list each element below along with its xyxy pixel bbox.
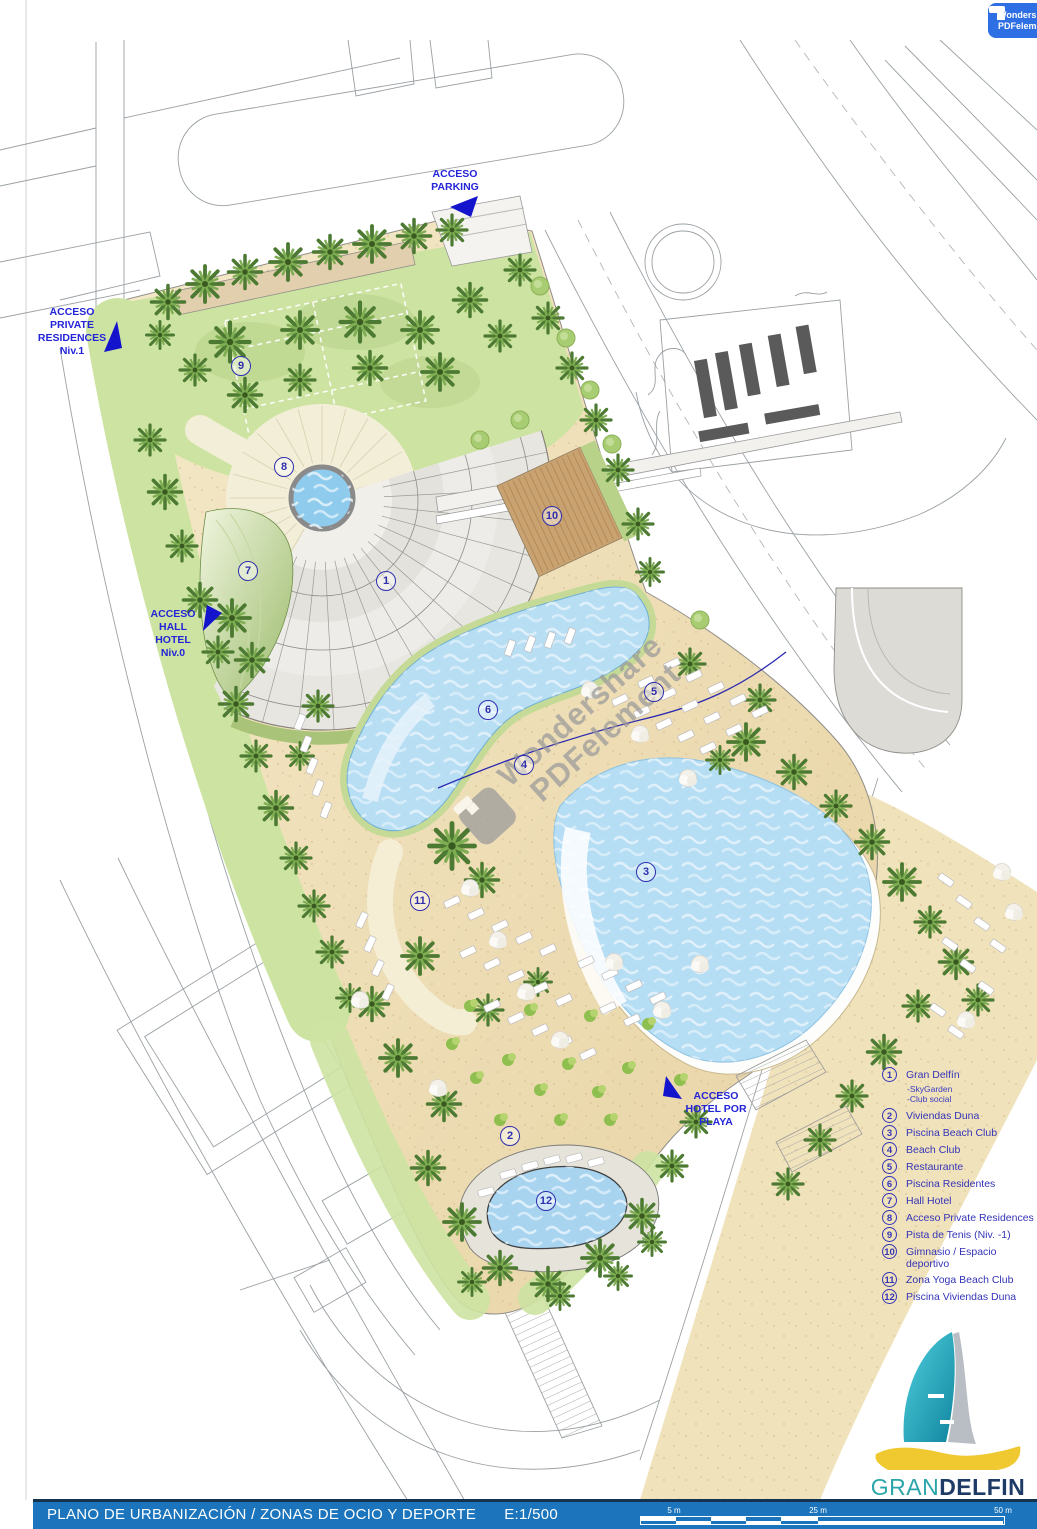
legend-number: 7 xyxy=(882,1193,897,1208)
plan-marker-2: 2 xyxy=(500,1126,520,1146)
legend-label: Gimnasio / Espacio deportivo xyxy=(906,1244,1037,1270)
legend-number: 2 xyxy=(882,1108,897,1123)
plan-marker-7: 7 xyxy=(238,561,258,581)
access-label-hotel-playa: ACCESOHOTEL PORPLAYA xyxy=(685,1090,746,1129)
legend-label: Viviendas Duna xyxy=(906,1108,979,1122)
legend-item-8: 8Acceso Private Residences xyxy=(882,1210,1037,1225)
plan-marker-8: 8 xyxy=(274,457,294,477)
legend-item-4: 4Beach Club xyxy=(882,1142,1037,1157)
access-label-hall-hotel: ACCESOHALLHOTELNiv.0 xyxy=(151,608,196,660)
access-label-parking: ACCESOPARKING xyxy=(431,168,479,194)
scale-tick-label: 25 m xyxy=(809,1506,827,1515)
pdfelement-badge-icon xyxy=(988,3,1008,23)
plan-marker-6: 6 xyxy=(478,700,498,720)
legend-number: 12 xyxy=(882,1289,897,1304)
legend-label: Piscina Beach Club xyxy=(906,1125,997,1139)
access-label-private-residences: ACCESOPRIVATERESIDENCESNiv.1 xyxy=(38,306,106,358)
legend-number: 6 xyxy=(882,1176,897,1191)
legend-item-10: 10Gimnasio / Espacio deportivo xyxy=(882,1244,1037,1270)
scale-segment xyxy=(676,1521,711,1525)
legend-label: Zona Yoga Beach Club xyxy=(906,1272,1013,1286)
legend-number: 11 xyxy=(882,1272,897,1287)
plan-scale: E:1/500 xyxy=(504,1506,558,1523)
plan-title: PLANO DE URBANIZACIÓN / ZONAS DE OCIO Y … xyxy=(47,1506,558,1523)
legend-label: Beach Club xyxy=(906,1142,960,1156)
scale-tick-label: 5 m xyxy=(667,1506,680,1515)
legend: 1Gran Delfín-SkyGarden-Club social2Vivie… xyxy=(882,1067,1037,1306)
brand-logo: GRANDELFIN PRIVATE RESIDENCES & HOTEL xyxy=(862,1326,1034,1524)
legend-item-6: 6Piscina Residentes xyxy=(882,1176,1037,1191)
scale-tick-label: 50 m xyxy=(994,1506,1012,1515)
legend-number: 4 xyxy=(882,1142,897,1157)
legend-number: 5 xyxy=(882,1159,897,1174)
legend-item-2: 2Viviendas Duna xyxy=(882,1108,1037,1123)
plan-marker-1: 1 xyxy=(376,571,396,591)
plan-marker-9: 9 xyxy=(231,356,251,376)
pdfelement-badge[interactable]: Wondershare PDFelement xyxy=(988,3,1037,38)
fountain xyxy=(291,467,353,529)
plan-marker-4: 4 xyxy=(514,755,534,775)
legend-label: Hall Hotel xyxy=(906,1193,952,1207)
neighbour-building xyxy=(683,325,825,443)
title-bar: PLANO DE URBANIZACIÓN / ZONAS DE OCIO Y … xyxy=(33,1499,1037,1529)
legend-label: Acceso Private Residences xyxy=(906,1210,1034,1224)
legend-label: Restaurante xyxy=(906,1159,963,1173)
legend-number: 3 xyxy=(882,1125,897,1140)
scale-bar: 5 m25 m50 m xyxy=(640,1516,1005,1525)
scale-segment xyxy=(641,1517,676,1521)
plan-marker-3: 3 xyxy=(636,862,656,882)
plan-marker-10: 10 xyxy=(542,506,562,526)
legend-item-5: 5Restaurante xyxy=(882,1159,1037,1174)
plan-marker-5: 5 xyxy=(644,682,664,702)
legend-item-1: 1Gran Delfín xyxy=(882,1067,1037,1082)
legend-label: Piscina Residentes xyxy=(906,1176,995,1190)
plan-marker-11: 11 xyxy=(410,891,430,911)
plan-marker-12: 12 xyxy=(536,1191,556,1211)
legend-number: 9 xyxy=(882,1227,897,1242)
legend-item-7: 7Hall Hotel xyxy=(882,1193,1037,1208)
legend-item-12: 12Piscina Viviendas Duna xyxy=(882,1289,1037,1304)
scale-segment xyxy=(746,1521,781,1525)
legend-item-3: 3Piscina Beach Club xyxy=(882,1125,1037,1140)
logo-name-gran: GRAN xyxy=(871,1474,939,1500)
scale-segment xyxy=(818,1521,1003,1525)
scale-segment xyxy=(781,1517,818,1521)
legend-label: Piscina Viviendas Duna xyxy=(906,1289,1016,1303)
legend-number: 8 xyxy=(882,1210,897,1225)
legend-label: Gran Delfín xyxy=(906,1067,960,1081)
legend-number: 10 xyxy=(882,1244,897,1259)
legend-number: 1 xyxy=(882,1067,897,1082)
legend-label: Pista de Tenis (Niv. -1) xyxy=(906,1227,1011,1241)
scale-segment xyxy=(711,1517,746,1521)
logo-name-delfin: DELFIN xyxy=(939,1474,1025,1500)
site-plan-page: Wondershare PDFelement 123456789101112 A… xyxy=(0,0,1037,1529)
legend-item-9: 9Pista de Tenis (Niv. -1) xyxy=(882,1227,1037,1242)
legend-sublabels: -SkyGarden-Club social xyxy=(907,1084,1037,1104)
legend-item-11: 11Zona Yoga Beach Club xyxy=(882,1272,1037,1287)
